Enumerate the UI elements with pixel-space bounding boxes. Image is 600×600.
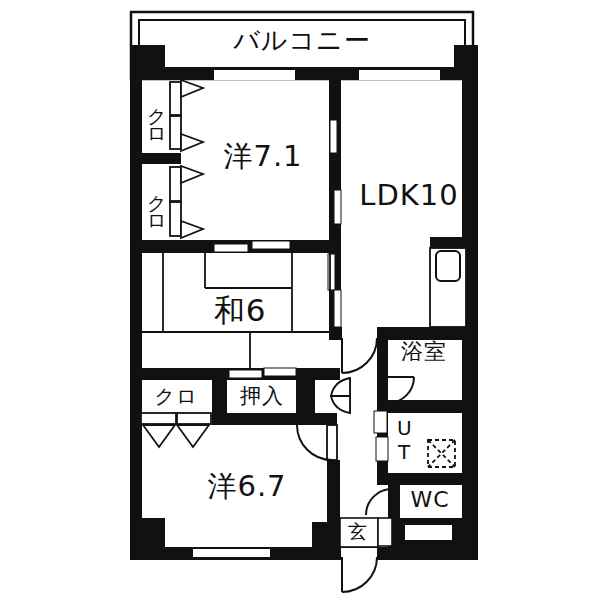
- interior-walls: [142, 79, 478, 548]
- wall-closet-divider: [142, 153, 181, 164]
- floor-plan-drawing: [0, 0, 600, 600]
- kitchen-sink-icon: [436, 251, 460, 281]
- folding-door-icon: [177, 425, 209, 447]
- sliding-door-west1-ldk: [334, 190, 341, 224]
- room-label-japanese-room: 和6: [214, 295, 267, 327]
- genkan-step: [378, 518, 392, 546]
- closet1-track: [170, 116, 181, 149]
- wall-kuro3-oshiire: [212, 380, 227, 413]
- sliding-door-ut: [376, 437, 388, 461]
- folding-door-icon: [143, 425, 175, 447]
- folding-door-icon: [181, 80, 203, 97]
- pillar-top-right: [454, 45, 478, 79]
- kitchen-counter: [430, 248, 466, 327]
- room-label-balcony: バルコニー: [233, 27, 370, 54]
- sliding-door-wa6-ldk: [328, 254, 335, 290]
- fusuma-oshiire: [264, 368, 296, 376]
- folding-door-icon: [181, 221, 203, 238]
- door-bathroom: [388, 377, 414, 403]
- sliding-door-west1-wa6: [252, 241, 290, 249]
- wall-left: [130, 67, 142, 560]
- door-west-room2: [297, 425, 337, 460]
- pillar-west2-corner: [312, 522, 340, 548]
- room-label-western-room2: 洋6.7: [207, 472, 286, 502]
- closet2-track: [170, 202, 181, 236]
- wall-west2-top: [212, 413, 337, 425]
- sliding-door-wa6-ldk: [334, 290, 341, 327]
- closet3-track: [177, 413, 211, 424]
- sliding-door-west1-ldk: [330, 120, 337, 153]
- pillar-top-left: [130, 45, 165, 79]
- door-hall-from-ldk: [342, 338, 377, 373]
- room-label-utility: UT: [394, 416, 414, 464]
- closet3-track: [141, 413, 176, 424]
- room-label-ldk: LDK10: [359, 181, 458, 211]
- door-entrance: [341, 548, 377, 592]
- sliding-door-ut: [374, 411, 387, 433]
- room-label-bathroom: 浴室: [401, 341, 447, 363]
- sliding-door-west1-wa6: [214, 244, 248, 252]
- room-label-western-room1: 洋7.1: [223, 142, 302, 172]
- wall-hall-corner: [329, 327, 342, 340]
- closet1-track: [170, 82, 181, 115]
- room-label-closet1: クロ: [147, 94, 166, 137]
- bifold-door-icon: [331, 396, 350, 413]
- floor-plan: バルコニー 洋7.1 LDK10 クロ クロ 和6 浴室 UT クロ 押入 洋6…: [0, 0, 600, 600]
- bifold-door-icon: [331, 378, 350, 396]
- window-west-room1: [214, 70, 295, 80]
- room-label-closet3: クロ: [155, 386, 198, 406]
- fusuma-oshiire: [229, 370, 262, 378]
- room-label-closet2: クロ: [147, 181, 166, 224]
- folding-door-icon: [181, 166, 203, 183]
- pillar-bottom-left: [130, 518, 165, 560]
- room-label-entrance: 玄: [348, 522, 368, 541]
- window-west-room2: [193, 549, 270, 557]
- closet2-track: [170, 167, 181, 201]
- wall-ut-wc: [377, 473, 462, 485]
- room-label-wc: WC: [410, 489, 449, 511]
- wall-kitchen-stub: [430, 237, 468, 248]
- porch-notch: [405, 525, 452, 540]
- folding-door-icon: [181, 134, 203, 151]
- room-label-oshiire: 押入: [240, 386, 284, 407]
- washing-machine-icon: [428, 440, 455, 467]
- window-ldk: [359, 70, 440, 80]
